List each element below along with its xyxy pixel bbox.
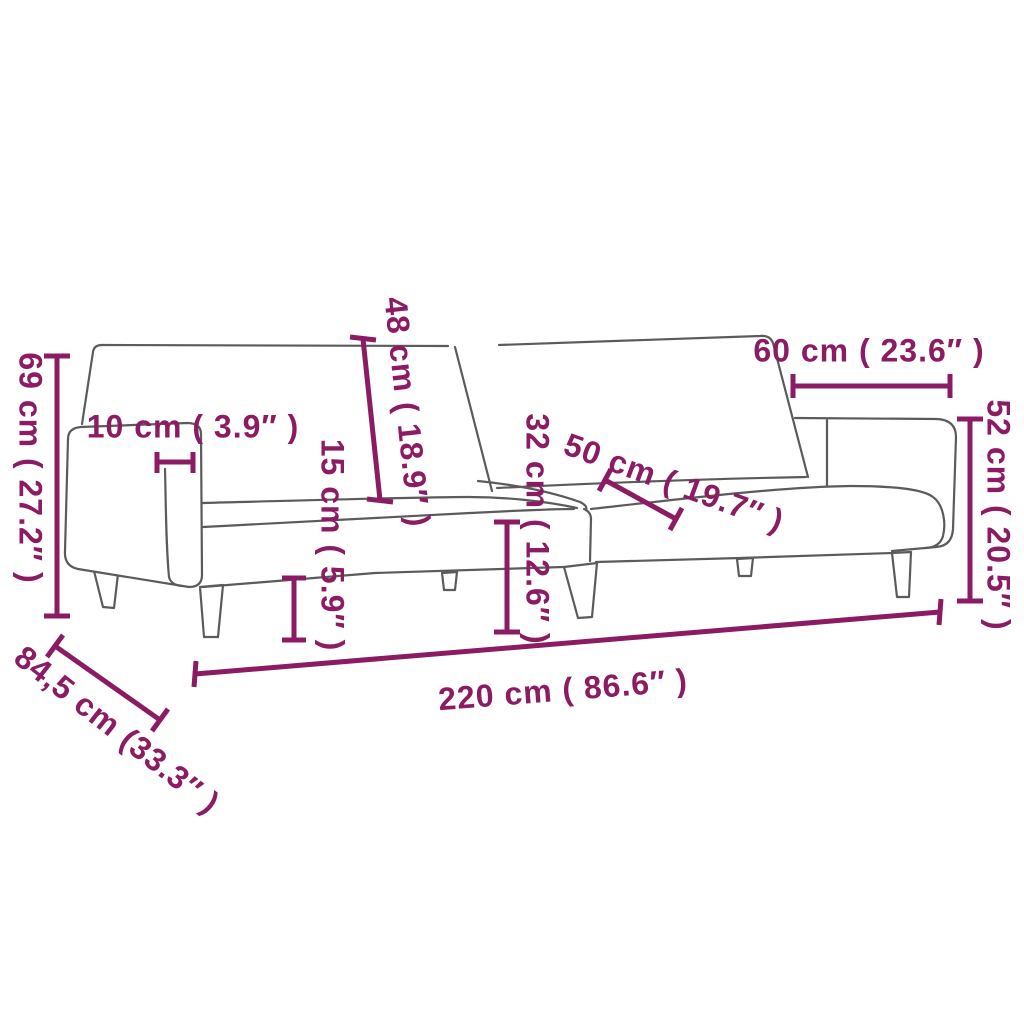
dimension-line-15cm — [282, 578, 306, 640]
leg-rear-left — [442, 572, 457, 590]
seat-divider-edge — [584, 509, 591, 561]
dim-label-10cm: 10 cm ( 3.9″ ) — [87, 409, 300, 446]
sofa-outline — [65, 336, 956, 637]
dimension-line-32cm — [494, 522, 520, 632]
leg-rear-right — [737, 558, 753, 576]
sofa-diagram-svg — [0, 0, 1024, 1024]
leg-front-right — [892, 552, 911, 597]
dimension-diagram: 69 cm ( 27.2″ ) 10 cm ( 3.9″ ) 48 cm ( 1… — [0, 0, 1024, 1024]
dim-label-32cm: 32 cm ( 12.6″ ) — [519, 413, 556, 644]
dim-label-52cm: 52 cm ( 20.5″ ) — [980, 399, 1017, 630]
dim-label-60cm: 60 cm ( 23.6″ ) — [753, 333, 984, 370]
right-armrest — [795, 418, 956, 551]
dim-label-69cm: 69 cm ( 27.2″ ) — [12, 352, 49, 583]
left-armrest — [65, 423, 202, 587]
leg-front-mid-right — [564, 563, 597, 618]
dim-label-15cm: 15 cm ( 5.9″ ) — [314, 439, 351, 652]
backrest-seam — [455, 347, 492, 491]
leg-front-left — [94, 571, 118, 608]
leg-front-mid-left — [200, 585, 223, 637]
dimension-line-60cm — [793, 374, 950, 398]
